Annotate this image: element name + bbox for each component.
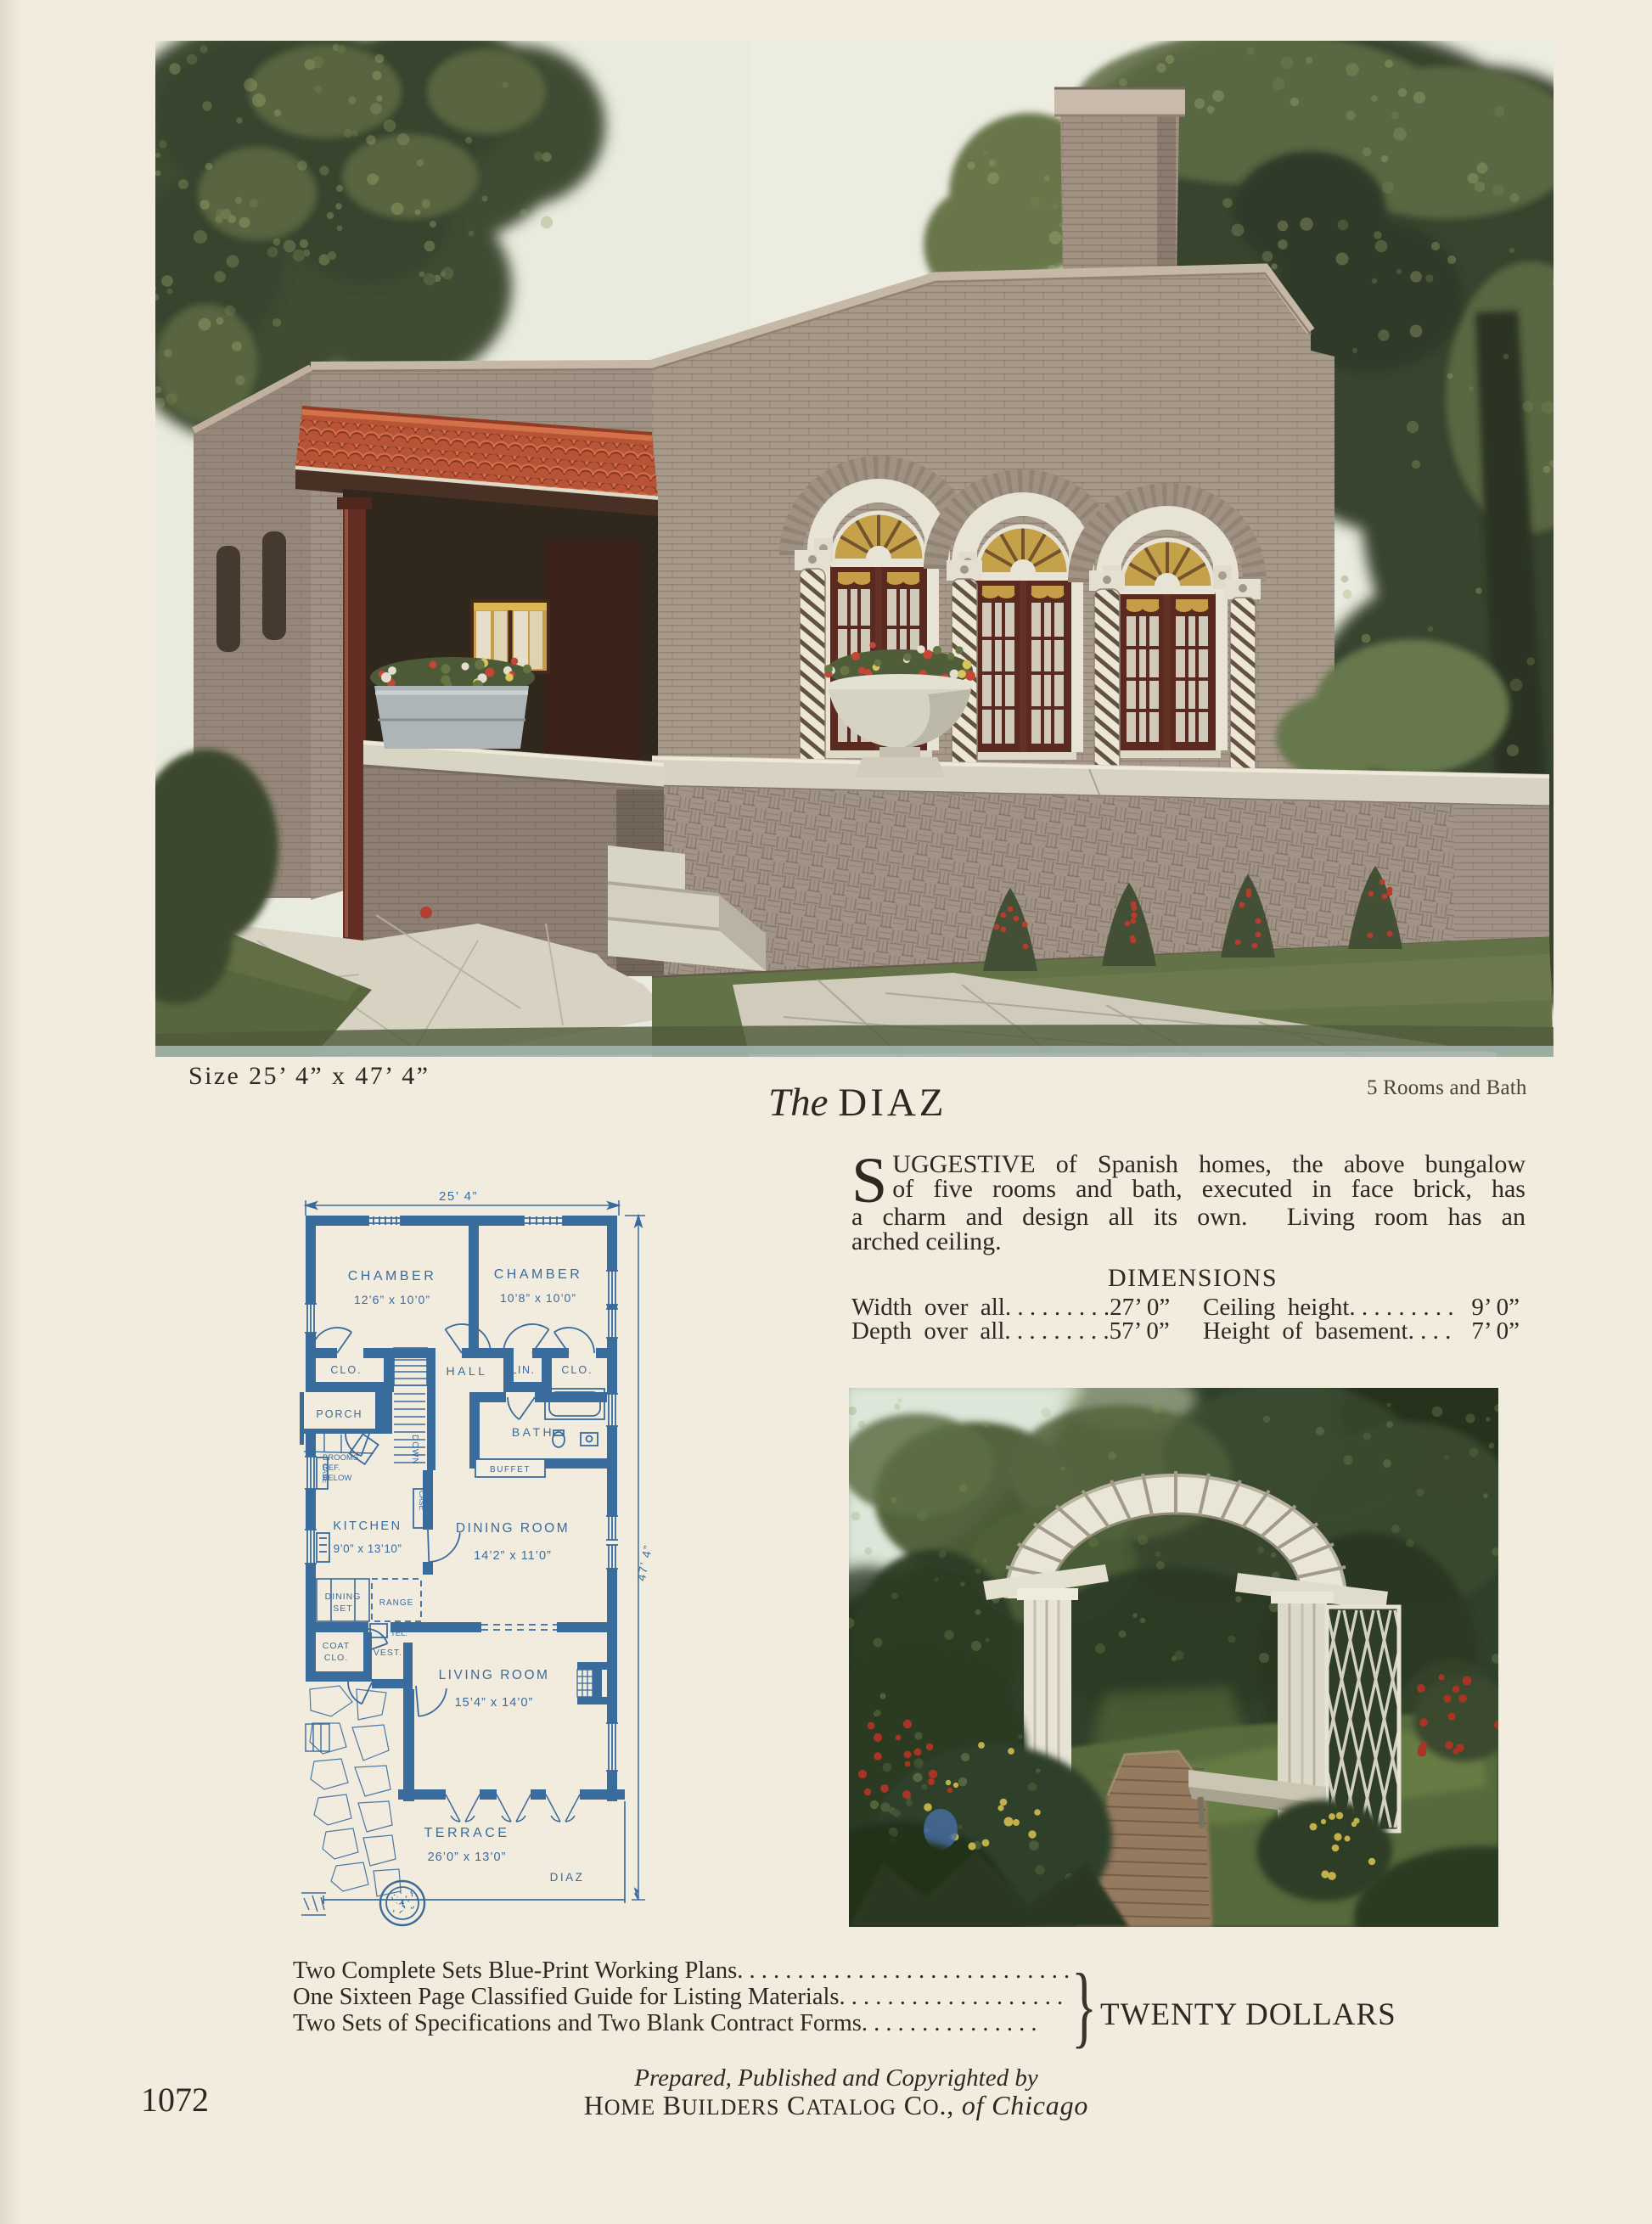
svg-text:CLO.: CLO. xyxy=(561,1364,593,1376)
svg-text:CASE: CASE xyxy=(321,1463,329,1483)
svg-text:DINING ROOM: DINING ROOM xyxy=(456,1521,570,1536)
svg-text:HALL: HALL xyxy=(446,1364,487,1378)
svg-text:25’ 4”: 25’ 4” xyxy=(439,1189,478,1204)
svg-text:12’6” x 10’0”: 12’6” x 10’0” xyxy=(354,1293,430,1306)
svg-text:TEL.: TEL. xyxy=(391,1629,407,1638)
svg-text:47’ 4”: 47’ 4” xyxy=(634,1543,655,1582)
svg-text:KITCHEN: KITCHEN xyxy=(333,1519,402,1533)
svg-text:COAT: COAT xyxy=(323,1641,350,1651)
svg-text:15’4” x 14’0”: 15’4” x 14’0” xyxy=(455,1696,534,1710)
svg-text:DOWN: DOWN xyxy=(410,1435,419,1465)
svg-text:TERRACE: TERRACE xyxy=(424,1826,510,1840)
svg-text:SET: SET xyxy=(333,1603,352,1614)
svg-text:BATH: BATH xyxy=(512,1425,554,1439)
svg-text:CHAMBER: CHAMBER xyxy=(348,1269,437,1283)
svg-text:RANGE: RANGE xyxy=(379,1598,414,1608)
svg-text:DINING: DINING xyxy=(325,1592,362,1602)
svg-text:LIN.: LIN. xyxy=(511,1364,536,1376)
svg-text:VEST.: VEST. xyxy=(374,1648,402,1658)
svg-text:9’0” x 13’10”: 9’0” x 13’10” xyxy=(334,1542,402,1555)
svg-text:PORCH: PORCH xyxy=(316,1408,362,1420)
svg-text:BUFFET: BUFFET xyxy=(490,1465,531,1474)
svg-text:LIVING ROOM: LIVING ROOM xyxy=(439,1668,550,1682)
svg-text:DIAZ: DIAZ xyxy=(550,1871,585,1884)
svg-text:10’8” x 10’0”: 10’8” x 10’0” xyxy=(500,1291,576,1305)
svg-text:14’2” x 11’0”: 14’2” x 11’0” xyxy=(474,1549,552,1563)
svg-text:CLO.: CLO. xyxy=(330,1364,362,1376)
svg-text:CLO.: CLO. xyxy=(324,1653,349,1663)
svg-text:26’0” x 13’0”: 26’0” x 13’0” xyxy=(428,1851,507,1864)
svg-text:CHAMBER: CHAMBER xyxy=(494,1267,583,1282)
